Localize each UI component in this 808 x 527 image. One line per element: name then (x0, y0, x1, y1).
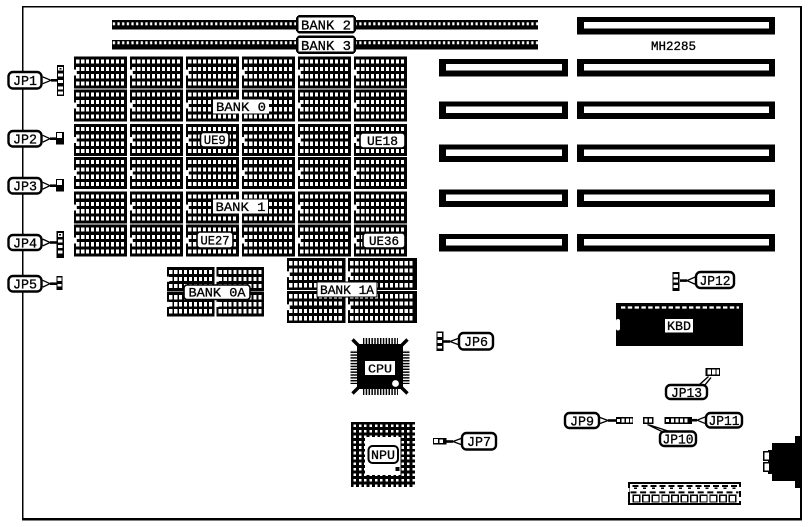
svg-text:NPU: NPU (371, 449, 395, 463)
svg-text:JP9: JP9 (570, 415, 594, 430)
svg-text:JP1: JP1 (13, 75, 37, 90)
svg-text:BANK 0: BANK 0 (216, 101, 266, 115)
svg-text:JP11: JP11 (709, 415, 740, 430)
svg-text:UE36: UE36 (369, 235, 399, 249)
svg-text:JP6: JP6 (464, 336, 488, 351)
svg-text:BANK 1: BANK 1 (216, 201, 266, 215)
svg-text:CPU: CPU (368, 362, 392, 376)
svg-text:MH2285: MH2285 (651, 40, 696, 54)
svg-text:JP5: JP5 (13, 279, 37, 294)
svg-text:JP4: JP4 (13, 237, 37, 252)
svg-text:JP10: JP10 (663, 434, 694, 449)
svg-text:UE27: UE27 (201, 234, 230, 248)
svg-text:UE18: UE18 (367, 135, 398, 149)
svg-text:JP2: JP2 (13, 134, 37, 149)
svg-text:BANK 2: BANK 2 (301, 19, 351, 34)
svg-text:UE9: UE9 (204, 134, 226, 148)
svg-text:JP7: JP7 (467, 436, 491, 451)
svg-text:BANK 3: BANK 3 (301, 40, 351, 55)
svg-text:JP13: JP13 (671, 387, 702, 402)
svg-text:BANK 0A: BANK 0A (189, 287, 247, 301)
svg-text:JP12: JP12 (700, 275, 731, 290)
svg-text:KBD: KBD (667, 320, 691, 334)
svg-text:JP3: JP3 (13, 181, 37, 196)
svg-text:BANK 1A: BANK 1A (320, 284, 375, 298)
